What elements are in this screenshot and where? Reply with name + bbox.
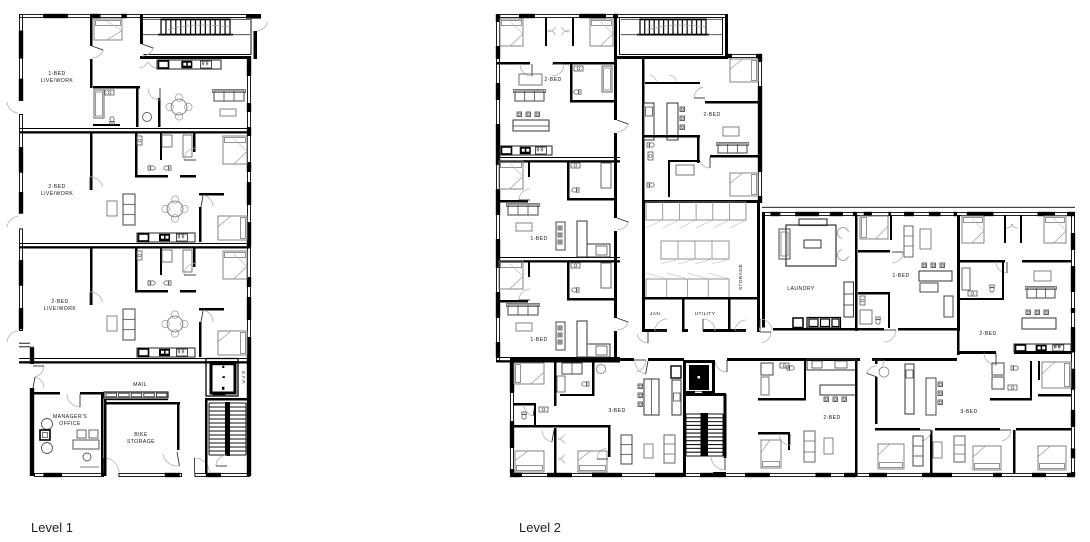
- svg-text:1-BED: 1-BED: [892, 273, 909, 279]
- svg-text:2-BED: 2-BED: [979, 331, 996, 337]
- svg-text:2-BED: 2-BED: [48, 184, 65, 190]
- svg-text:BIKE: BIKE: [134, 432, 148, 438]
- svg-text:STORAGE: STORAGE: [738, 264, 744, 290]
- svg-text:MANAGER'S: MANAGER'S: [53, 414, 87, 420]
- svg-text:OFFICE: OFFICE: [59, 421, 81, 427]
- svg-text:STORAGE: STORAGE: [127, 439, 155, 445]
- svg-text:E.F.P.: E.F.P.: [241, 371, 246, 385]
- svg-text:LIVE/WORK: LIVE/WORK: [41, 191, 74, 197]
- svg-text:MAIL: MAIL: [133, 382, 147, 388]
- svg-text:UTILITY: UTILITY: [695, 311, 716, 317]
- svg-text:1-BED: 1-BED: [530, 337, 547, 343]
- svg-text:1-BED: 1-BED: [530, 236, 547, 242]
- svg-text:2-BED: 2-BED: [823, 415, 840, 421]
- svg-text:2-BED: 2-BED: [703, 112, 720, 118]
- svg-text:3-BED: 3-BED: [608, 408, 625, 414]
- svg-text:LIVE/WORK: LIVE/WORK: [41, 78, 74, 84]
- svg-text:LIVE/WORK: LIVE/WORK: [44, 306, 77, 312]
- svg-text:2-BED: 2-BED: [51, 299, 68, 305]
- svg-text:Level 2: Level 2: [519, 520, 561, 535]
- svg-text:3-BED: 3-BED: [960, 409, 977, 415]
- svg-text:2-BED: 2-BED: [544, 77, 561, 83]
- svg-text:Level 1: Level 1: [31, 520, 73, 535]
- svg-text:LAUNDRY: LAUNDRY: [787, 286, 815, 292]
- svg-text:JAN.: JAN.: [650, 311, 662, 317]
- svg-text:1-BED: 1-BED: [48, 71, 65, 77]
